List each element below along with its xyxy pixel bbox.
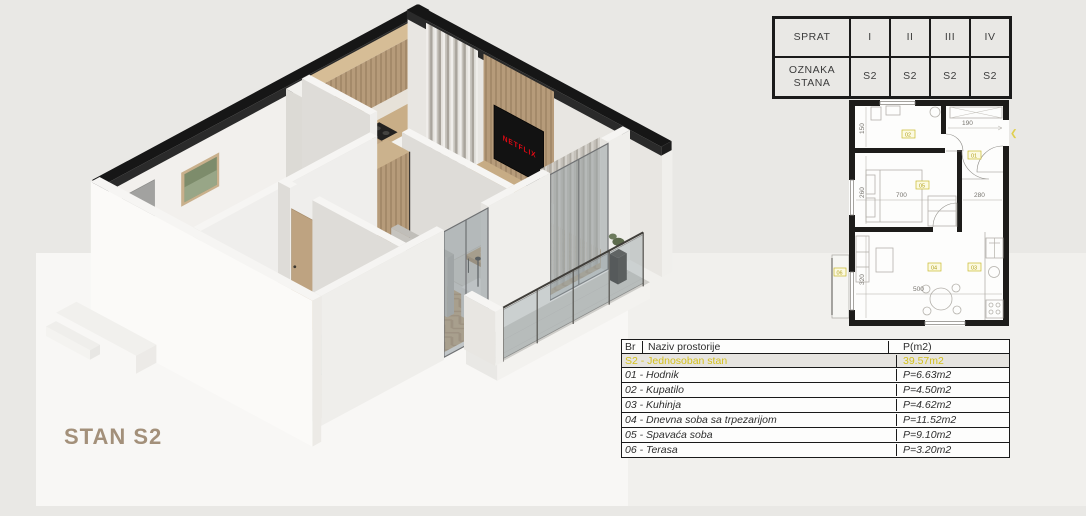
row-name: 06 - Terasa xyxy=(622,444,896,456)
row-name: 03 - Kuhinja xyxy=(622,399,896,411)
unit-i: S2 xyxy=(850,57,890,97)
floor-iii: III xyxy=(930,18,970,57)
highlight-area: 39.57m2 xyxy=(896,355,1009,367)
row-area: P=4.62m2 xyxy=(896,399,1009,411)
table-row: 03 - Kuhinja P=4.62m2 xyxy=(622,397,1009,412)
highlight-name: S2 - Jednosoban stan xyxy=(622,355,896,367)
table-row: 05 - Spavaća soba P=9.10m2 xyxy=(622,427,1009,442)
floor-table-label: SPRAT xyxy=(774,18,850,57)
room-label-06: 06 xyxy=(837,271,843,277)
dim-500: 500 xyxy=(913,286,924,293)
dim-280: 280 xyxy=(974,192,985,199)
table-row: 04 - Dnevna soba sa trpezarijom P=11.52m… xyxy=(622,412,1009,427)
row-name: 04 - Dnevna soba sa trpezarijom xyxy=(622,414,896,426)
col-area: P(m2) xyxy=(888,341,1009,353)
floor-iv: IV xyxy=(970,18,1010,57)
floor-plan-2d: 150 190 260 700 280 320 500 01 02 03 04 xyxy=(828,96,1018,334)
row-area: P=3.20m2 xyxy=(896,444,1009,456)
row-area: P=11.52m2 xyxy=(896,414,1009,426)
row-area: P=9.10m2 xyxy=(896,429,1009,441)
row-name: 02 - Kupatilo xyxy=(622,384,896,396)
highlight-row: S2 - Jednosoban stan 39.57m2 xyxy=(622,353,1009,367)
entrance-arrow-icon: ❮ xyxy=(1010,128,1018,139)
rooms-area-table: Br Naziv prostorije P(m2) S2 - Jednosoba… xyxy=(621,339,1010,458)
dim-190: 190 xyxy=(962,120,973,127)
floor-ii: II xyxy=(890,18,930,57)
rooms-table-header: Br Naziv prostorije P(m2) xyxy=(622,340,1009,353)
room-label-05: 05 xyxy=(919,184,925,190)
room-label-03: 03 xyxy=(971,266,977,272)
row-name: 01 - Hodnik xyxy=(622,369,896,381)
table-row: 02 - Kupatilo P=4.50m2 xyxy=(622,382,1009,397)
floor-unit-table: SPRAT I II III IV OZNAKA STANA S2 S2 S2 … xyxy=(772,16,1012,99)
room-label-02: 02 xyxy=(905,133,911,139)
col-br: Br xyxy=(622,341,643,353)
row-area: P=6.63m2 xyxy=(896,369,1009,381)
table-row: 01 - Hodnik P=6.63m2 xyxy=(622,367,1009,382)
unit-iii: S2 xyxy=(930,57,970,97)
room-label-01: 01 xyxy=(971,154,977,160)
dim-150: 150 xyxy=(859,123,866,134)
unit-ii: S2 xyxy=(890,57,930,97)
page: NETFLIX STAN S2 SPRAT I II III IV OZNAKA… xyxy=(0,0,1086,516)
dim-260: 260 xyxy=(859,187,866,198)
col-name: Naziv prostorije xyxy=(643,341,888,353)
unit-table-label: OZNAKA STANA xyxy=(774,57,850,97)
dim-320: 320 xyxy=(859,274,866,285)
plan-terrace xyxy=(832,255,849,318)
table-row: 06 - Terasa P=3.20m2 xyxy=(622,442,1009,457)
row-area: P=4.50m2 xyxy=(896,384,1009,396)
dim-700: 700 xyxy=(896,192,907,199)
page-title: STAN S2 xyxy=(64,424,162,450)
room-label-04: 04 xyxy=(931,266,937,272)
floor-i: I xyxy=(850,18,890,57)
row-name: 05 - Spavaća soba xyxy=(622,429,896,441)
unit-iv: S2 xyxy=(970,57,1010,97)
